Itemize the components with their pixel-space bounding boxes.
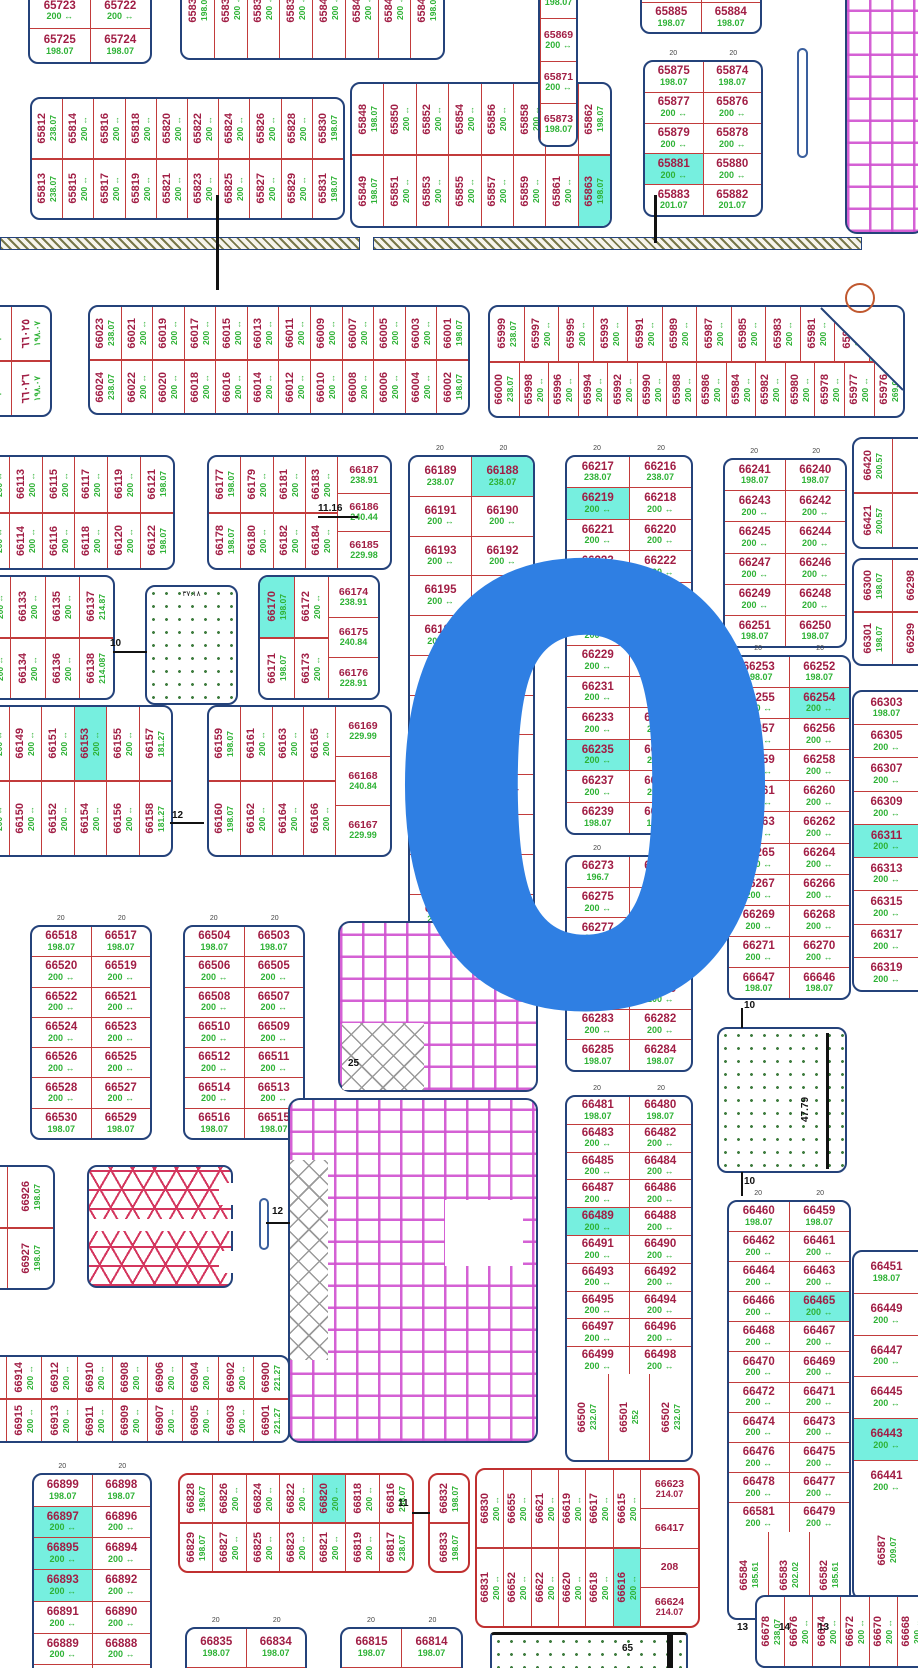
plot-cell[interactable]: 66903200 ↔ [218, 1400, 253, 1441]
plot-cell[interactable]: 208 [641, 1548, 698, 1587]
plot-cell[interactable]: 66480198.07 [630, 1097, 692, 1124]
plot-cell[interactable]: 65843200 ↔ [345, 0, 378, 58]
plot-cell[interactable]: 66172200 ↔ [294, 577, 329, 637]
plot-cell[interactable]: 66897200 ↔ [34, 1507, 93, 1538]
plot-cell[interactable]: 66187238.91 [338, 457, 390, 493]
plot-cell[interactable]: 66020200 ↔ [152, 361, 184, 413]
plot-cell[interactable]: 66248200 ↔ [786, 585, 846, 615]
plot-cell[interactable]: 66493200 ↔ [567, 1264, 630, 1291]
plot-cell[interactable]: 66225200 ↔ [567, 583, 630, 613]
plot-cell[interactable]: 65865198.07 [541, 0, 576, 18]
plot-cell[interactable]: 66152200 ↔ [41, 782, 74, 855]
plot-cell[interactable]: 66013200 ↔ [247, 307, 279, 359]
plot-cell[interactable]: 66499200 ↔ [567, 1347, 630, 1374]
plot-cell[interactable]: 66224200 ↔ [630, 583, 692, 613]
plot-cell[interactable]: 66834198.07 [247, 1629, 306, 1667]
plot-cell[interactable]: 65835200 ↔ [214, 0, 247, 58]
plot-cell[interactable]: 66828198.07 [180, 1475, 212, 1522]
plot-cell[interactable]: 66483200 ↔ [567, 1125, 630, 1152]
plot-cell[interactable]: 65820200 ↔ [156, 99, 187, 158]
plot-cell[interactable]: 66024238.07 [90, 361, 121, 413]
plot-cell[interactable]: 66624214.07 [641, 1587, 698, 1626]
plot-cell[interactable]: 66021200 ↔ [121, 307, 153, 359]
plot-cell[interactable]: 66285198.07 [567, 1040, 630, 1070]
plot-cell[interactable]: 66485200 ↔ [567, 1153, 630, 1180]
plot-cell[interactable]: 66479200 ↔ [790, 1503, 850, 1532]
plot-cell[interactable]: 66271200 ↔ [729, 937, 790, 967]
plot-cell[interactable]: 66928200 ↔ [0, 1167, 7, 1227]
plot-cell[interactable]: 66257200 ↔ [729, 719, 790, 749]
plot-cell[interactable]: 66498200 ↔ [630, 1347, 692, 1374]
plot-cell[interactable]: 66250198.07 [786, 616, 846, 646]
plot-cell[interactable]: 66196200 ↔ [472, 616, 533, 655]
plot-cell[interactable]: 66298 [892, 560, 918, 611]
plot-cell[interactable]: 66227200 ↔ [567, 614, 630, 644]
plot-cell[interactable]: 65847198.07 [410, 0, 443, 58]
plot-cell[interactable]: 65816200 ↔ [93, 99, 124, 158]
plot-cell[interactable]: 66464200 ↔ [729, 1262, 790, 1291]
plot-cell[interactable]: 65998200 ↔ [519, 363, 549, 417]
plot-cell[interactable]: 66902200 ↔ [218, 1357, 253, 1398]
plot-cell[interactable]: 66511200 ↔ [245, 1048, 304, 1077]
plot-cell[interactable]: 65871200 ↔ [541, 61, 576, 103]
plot-cell[interactable]: 66247200 ↔ [725, 554, 786, 584]
plot-cell[interactable]: 66506200 ↔ [185, 957, 245, 986]
plot-cell[interactable]: 66244200 ↔ [786, 522, 846, 552]
plot-cell[interactable]: 66814198.07 [402, 1629, 461, 1667]
plot-cell[interactable]: ٦٦٠٢٥١٩٨.٠٧ [11, 307, 51, 360]
plot-cell[interactable]: 66889200 ↔ [34, 1634, 93, 1665]
plot-cell[interactable]: 66133200 ↔ [10, 577, 44, 637]
plot-cell[interactable]: 65876200 ↔ [704, 93, 762, 123]
plot-cell[interactable]: 65850200 ↔ [383, 84, 415, 154]
plot-cell[interactable]: 66469200 ↔ [790, 1352, 850, 1381]
plot-cell[interactable]: 66441200 ↔ [854, 1461, 918, 1502]
plot-cell[interactable]: 66620200 ↔ [558, 1549, 585, 1626]
plot-cell[interactable]: 65884198.07 [702, 3, 761, 33]
plot-cell[interactable]: 66317200 ↔ [854, 925, 918, 957]
plot-cell[interactable]: 65996200 ↔ [548, 363, 578, 417]
plot-cell[interactable]: 65825200 ↔ [218, 160, 249, 219]
plot-cell[interactable]: 66476200 ↔ [729, 1443, 790, 1472]
plot-cell[interactable]: 66487200 ↔ [567, 1180, 630, 1207]
plot-cell[interactable]: 66502232.07 [649, 1374, 691, 1460]
plot-cell[interactable]: 66449200 ↔ [854, 1294, 918, 1335]
plot-cell[interactable]: 66169229.99 [336, 707, 390, 756]
plot-cell[interactable]: 66910200 ↔ [77, 1357, 112, 1398]
plot-cell[interactable]: 66205200 ↔ [410, 775, 472, 814]
plot-cell[interactable]: 66012200 ↔ [278, 361, 310, 413]
plot-cell[interactable]: 66273196.7 [567, 857, 630, 887]
plot-cell[interactable]: 65819200 ↔ [125, 160, 156, 219]
plot-cell[interactable]: 66185229.98 [338, 531, 390, 568]
plot-cell[interactable]: 66003200 ↔ [405, 307, 437, 359]
plot-cell[interactable]: 66252198.07 [790, 657, 850, 687]
plot-cell[interactable]: 66119200 ↔ [107, 457, 140, 512]
plot-cell[interactable]: 66171198.07 [260, 639, 294, 699]
plot-cell[interactable]: 66220200 ↔ [630, 520, 692, 550]
plot-cell[interactable]: 66913200 ↔ [41, 1400, 76, 1441]
plot-cell[interactable]: 66831200 ↔ [477, 1549, 503, 1626]
plot-cell[interactable]: 66477200 ↔ [790, 1473, 850, 1502]
plot-cell[interactable]: 66147200 ↔ [0, 707, 9, 780]
plot-cell[interactable]: 66527200 ↔ [92, 1078, 151, 1107]
plot-cell[interactable]: 66237200 ↔ [567, 771, 630, 801]
plot-cell[interactable]: 66829198.07 [180, 1524, 212, 1571]
plot-cell[interactable]: 66268200 ↔ [790, 906, 850, 936]
plot-cell[interactable]: 65845200 ↔ [378, 0, 411, 58]
plot-cell[interactable]: 66131200 ↔ [0, 577, 10, 637]
plot-cell[interactable]: 66908200 ↔ [112, 1357, 147, 1398]
plot-cell[interactable]: 66167229.99 [336, 805, 390, 855]
plot-cell[interactable]: 65993200 ↔ [593, 307, 628, 361]
plot-cell[interactable]: 66504198.07 [185, 927, 245, 956]
plot-cell[interactable]: 66177198.07 [209, 457, 240, 512]
plot-cell[interactable]: 66909200 ↔ [112, 1400, 147, 1441]
plot-cell[interactable]: 65999238.07 [490, 307, 524, 361]
plot-cell[interactable]: 66018200 ↔ [184, 361, 216, 413]
plot-cell[interactable]: 65812238.07 [32, 99, 62, 158]
plot-cell[interactable]: 65863198.07 [578, 156, 610, 226]
plot-cell[interactable]: 66216238.07 [630, 457, 692, 487]
plot-cell[interactable]: 66190200 ↔ [472, 497, 533, 536]
plot-cell[interactable]: 66134200 ↔ [10, 639, 44, 699]
plot-cell[interactable]: 66472200 ↔ [729, 1383, 790, 1412]
plot-cell[interactable]: 65824200 ↔ [218, 99, 249, 158]
plot-cell[interactable]: 65815200 ↔ [62, 160, 93, 219]
plot-cell[interactable]: 66151200 ↔ [41, 707, 74, 780]
plot-cell[interactable]: 66174238.91 [329, 577, 378, 617]
plot-cell[interactable]: 66815198.07 [342, 1629, 402, 1667]
plot-cell[interactable]: 66202200 ↔ [472, 735, 533, 774]
plot-cell[interactable]: 66238198.07 [630, 803, 692, 833]
plot-cell[interactable]: 66138214.087 [79, 639, 113, 699]
plot-cell[interactable]: 65991200 ↔ [627, 307, 662, 361]
plot-cell[interactable]: ٦٦٠٢٧٢٠٠ [0, 307, 11, 360]
plot-cell[interactable]: 66906200 ↔ [147, 1357, 182, 1398]
plot-cell[interactable]: 66926198.07 [7, 1167, 53, 1227]
plot-cell[interactable]: 66447200 ↔ [854, 1336, 918, 1377]
plot-cell[interactable]: 66153200 ↔ [74, 707, 107, 780]
plot-cell[interactable]: 66157181.27 [139, 707, 172, 780]
plot-cell[interactable]: 66166200 ↔ [303, 782, 335, 855]
plot-cell[interactable]: 66154200 ↔ [74, 782, 107, 855]
plot-cell[interactable]: 65988200 ↔ [666, 363, 696, 417]
plot-cell[interactable]: 66010200 ↔ [310, 361, 342, 413]
plot-cell[interactable]: 66821200 ↔ [312, 1524, 345, 1571]
plot-cell[interactable]: 65823200 ↔ [187, 160, 218, 219]
plot-cell[interactable]: 66451198.07 [854, 1252, 918, 1293]
plot-cell[interactable]: 65878200 ↔ [704, 124, 762, 154]
plot-cell[interactable]: 66492200 ↔ [630, 1264, 692, 1291]
plot-cell[interactable]: 66209200 ↔ [410, 855, 472, 894]
plot-cell[interactable]: 66163200 ↔ [272, 707, 304, 780]
plot-cell[interactable]: 66204200 ↔ [472, 775, 533, 814]
plot-cell[interactable]: 66825200 ↔ [246, 1524, 279, 1571]
plot-cell[interactable]: 65856200 ↔ [481, 84, 513, 154]
plot-cell[interactable]: 66305200 ↔ [854, 725, 918, 757]
plot-cell[interactable]: 65880200 ↔ [704, 154, 762, 184]
plot-cell[interactable]: 66260200 ↔ [790, 781, 850, 811]
plot-cell[interactable]: 65990200 ↔ [637, 363, 667, 417]
plot-cell[interactable]: 66417 [641, 1508, 698, 1547]
plot-cell[interactable]: 66618200 ↔ [585, 1549, 612, 1626]
plot-cell[interactable]: 66497200 ↔ [567, 1319, 630, 1346]
plot-cell[interactable]: 66615200 ↔ [613, 1470, 640, 1547]
plot-cell[interactable]: 66465200 ↔ [790, 1292, 850, 1321]
plot-cell[interactable]: 66263200 ↔ [729, 812, 790, 842]
plot-cell[interactable]: 66235200 ↔ [567, 740, 630, 770]
plot-cell[interactable]: 66198200 ↔ [472, 656, 533, 695]
plot-cell[interactable]: 65837200 ↔ [247, 0, 280, 58]
plot-cell[interactable]: 65849198.07 [352, 156, 383, 226]
plot-cell[interactable]: 65833198.07 [182, 0, 214, 58]
plot-cell[interactable]: 66475200 ↔ [790, 1443, 850, 1472]
plot-cell[interactable]: 66505200 ↔ [245, 957, 304, 986]
plot-cell[interactable]: 66820200 ↔ [312, 1475, 345, 1522]
plot-cell[interactable]: 66500232.07 [567, 1374, 608, 1460]
plot-cell[interactable]: 66313200 ↔ [854, 858, 918, 890]
plot-cell[interactable]: 66501252 [608, 1374, 650, 1460]
plot-cell[interactable]: 66524200 ↔ [32, 1018, 92, 1047]
plot-cell[interactable]: 66905200 ↔ [182, 1400, 217, 1441]
plot-cell[interactable]: 66420200.57 [854, 439, 892, 492]
plot-cell[interactable]: 65885198.07 [642, 3, 702, 33]
plot-cell[interactable]: 66246200 ↔ [786, 554, 846, 584]
plot-cell[interactable]: 66207200 ↔ [410, 815, 472, 854]
plot-cell[interactable]: 66193200 ↔ [410, 537, 472, 576]
plot-cell[interactable]: 66008200 ↔ [342, 361, 374, 413]
plot-cell[interactable]: 66929200 ↔ [0, 1229, 7, 1289]
plot-cell[interactable]: 66823200 ↔ [279, 1524, 312, 1571]
plot-cell[interactable]: 66175240.84 [329, 617, 378, 658]
plot-cell[interactable]: 66120200 ↔ [107, 514, 140, 569]
plot-cell[interactable]: 66007200 ↔ [342, 307, 374, 359]
plot-cell[interactable]: 66468200 ↔ [729, 1322, 790, 1351]
plot-cell[interactable]: 66255200 ↔ [729, 688, 790, 718]
plot-cell[interactable]: 65828200 ↔ [281, 99, 312, 158]
plot-cell[interactable]: 66195200 ↔ [410, 576, 472, 615]
plot-cell[interactable]: 66254200 ↔ [790, 688, 850, 718]
plot-cell[interactable]: 65989200 ↔ [662, 307, 697, 361]
plot-cell[interactable]: 66278200 ↔ [630, 949, 692, 979]
plot-cell[interactable]: 66265200 ↔ [729, 844, 790, 874]
plot-cell[interactable]: 66520200 ↔ [32, 957, 92, 986]
plot-cell[interactable]: 66300198.07 [854, 560, 892, 611]
plot-cell[interactable]: 66241198.07 [725, 460, 786, 490]
plot-cell[interactable]: 66587209.07 [854, 1502, 918, 1598]
plot-cell[interactable]: 65982200 ↔ [755, 363, 785, 417]
plot-cell[interactable]: 66173200 ↔ [294, 639, 329, 699]
plot-cell[interactable]: 66161200 ↔ [240, 707, 272, 780]
plot-cell[interactable]: 66301198.07 [854, 613, 892, 664]
plot-cell[interactable]: 66262200 ↔ [790, 812, 850, 842]
plot-cell[interactable]: 66462200 ↔ [729, 1232, 790, 1261]
plot-cell[interactable]: 66136200 ↔ [45, 639, 79, 699]
plot-cell[interactable]: 66482200 ↔ [630, 1125, 692, 1152]
plot-cell[interactable]: 66899198.07 [34, 1475, 93, 1506]
plot-cell[interactable]: 66277200 ↔ [567, 918, 630, 948]
plot-cell[interactable]: 66155200 ↔ [106, 707, 139, 780]
plot-cell[interactable]: 66160198.07 [209, 782, 240, 855]
plot-cell[interactable]: ٦٦٠٢٦١٩٨.٠٧ [11, 362, 51, 415]
plot-cell[interactable]: 66461200 ↔ [790, 1232, 850, 1261]
plot-cell[interactable]: 66251198.07 [725, 616, 786, 646]
plot-cell[interactable]: 66529198.07 [92, 1109, 151, 1138]
plot-cell[interactable]: 66309200 ↔ [854, 792, 918, 824]
plot-cell[interactable]: 65986200 ↔ [696, 363, 726, 417]
plot-cell[interactable]: 66201200 ↔ [410, 696, 472, 735]
plot-cell[interactable]: 66470200 ↔ [729, 1352, 790, 1381]
plot-cell[interactable]: 65826200 ↔ [249, 99, 280, 158]
plot-cell[interactable]: 66243200 ↔ [725, 491, 786, 521]
plot-cell[interactable]: 66826200 ↔ [212, 1475, 245, 1522]
plot-cell[interactable]: 65994200 ↔ [578, 363, 608, 417]
plot-cell[interactable]: 66893200 ↔ [34, 1570, 93, 1601]
plot-cell[interactable]: 66279200 ↔ [567, 949, 630, 979]
plot-cell[interactable]: 66261200 ↔ [729, 781, 790, 811]
plot-cell[interactable]: 66206200 ↔ [472, 815, 533, 854]
plot-cell[interactable]: 66900221.27 [253, 1357, 288, 1398]
plot-cell[interactable]: 65813238.07 [32, 160, 62, 219]
plot-cell[interactable]: 66512200 ↔ [185, 1048, 245, 1077]
plot-cell[interactable]: 65841200 ↔ [312, 0, 345, 58]
plot-cell[interactable]: 65853200 ↔ [416, 156, 448, 226]
plot-cell[interactable]: 65873198.07 [541, 103, 576, 145]
plot-cell[interactable]: 66272198.07 [630, 857, 692, 887]
plot-cell[interactable]: 66282200 ↔ [630, 1010, 692, 1040]
plot-cell[interactable]: 65987200 ↔ [696, 307, 731, 361]
plot-cell[interactable]: 66276200 ↔ [630, 918, 692, 948]
plot-cell[interactable]: 66232200 ↔ [630, 708, 692, 738]
plot-cell[interactable]: 66616200 ↔ [613, 1549, 640, 1626]
plot-cell[interactable]: 66184200 ↔ [305, 514, 337, 569]
plot-cell[interactable]: 66491200 ↔ [567, 1236, 630, 1263]
plot-cell[interactable]: 66283200 ↔ [567, 1010, 630, 1040]
plot-cell[interactable]: 66170198.07 [260, 577, 294, 637]
plot-cell[interactable]: 66275200 ↔ [567, 888, 630, 918]
plot-cell[interactable]: 66266200 ↔ [790, 875, 850, 905]
plot-cell[interactable]: 66164200 ↔ [272, 782, 304, 855]
plot-cell[interactable]: 66122198.07 [140, 514, 173, 569]
plot-cell[interactable]: 66467200 ↔ [790, 1322, 850, 1351]
plot-cell[interactable]: 66168240.84 [336, 756, 390, 806]
plot-cell[interactable]: 66460198.07 [729, 1202, 790, 1231]
plot-cell[interactable]: 66150200 ↔ [9, 782, 42, 855]
plot-cell[interactable]: 66230200 ↔ [630, 677, 692, 707]
plot-cell[interactable]: 66443200 ↔ [854, 1419, 918, 1460]
plot-cell[interactable]: 66907200 ↔ [147, 1400, 182, 1441]
plot-cell[interactable]: 66223200 ↔ [567, 551, 630, 581]
plot-cell[interactable]: 66915200 ↔ [6, 1400, 41, 1441]
plot-cell[interactable]: 66240198.07 [786, 460, 846, 490]
plot-cell[interactable]: 66014200 ↔ [247, 361, 279, 413]
plot-cell[interactable]: 66023238.07 [90, 307, 121, 359]
plot-cell[interactable]: 66019200 ↔ [152, 307, 184, 359]
plot-cell[interactable]: 65851200 ↔ [383, 156, 415, 226]
plot-cell[interactable]: 66463200 ↔ [790, 1262, 850, 1291]
plot-cell[interactable]: 66016200 ↔ [215, 361, 247, 413]
plot-cell[interactable]: 66203200 ↔ [410, 735, 472, 774]
plot-cell[interactable]: 66522200 ↔ [32, 988, 92, 1017]
plot-cell[interactable]: 66303198.07 [854, 692, 918, 724]
plot-cell[interactable]: 66521200 ↔ [92, 988, 151, 1017]
plot-cell[interactable]: 65879200 ↔ [645, 124, 704, 154]
plot-cell[interactable]: 66830200 ↔ [477, 1470, 503, 1547]
plot-cell[interactable]: 65854200 ↔ [448, 84, 480, 154]
plot-cell[interactable]: 66912200 ↔ [41, 1357, 76, 1398]
plot-cell[interactable]: 66824200 ↔ [246, 1475, 279, 1522]
plot-cell[interactable]: 66895200 ↔ [34, 1538, 93, 1569]
plot-cell[interactable]: 66523200 ↔ [92, 1018, 151, 1047]
plot-cell[interactable]: 65859200 ↔ [513, 156, 545, 226]
plot-cell[interactable]: 66111200 ↔ [0, 457, 9, 512]
plot-cell[interactable]: 66006200 ↔ [373, 361, 405, 413]
plot-cell[interactable]: 66652200 ↔ [503, 1549, 530, 1626]
plot-cell[interactable]: 66221200 ↔ [567, 520, 630, 550]
plot-cell[interactable]: 66319200 ↔ [854, 958, 918, 990]
plot-cell[interactable]: 65984200 ↔ [726, 363, 756, 417]
plot-cell[interactable]: 66181200 ↔ [273, 457, 305, 512]
plot-cell[interactable]: 66525200 ↔ [92, 1048, 151, 1077]
plot-cell[interactable]: 66672200 ↔ [840, 1597, 868, 1666]
plot-cell[interactable]: 65881200 ↔ [645, 154, 704, 184]
plot-cell[interactable]: 66516198.07 [185, 1109, 245, 1138]
plot-cell[interactable]: 66194200 ↔ [472, 576, 533, 615]
plot-cell[interactable]: 66299 [892, 613, 918, 664]
plot-cell[interactable]: 66670200 ↔ [869, 1597, 897, 1666]
plot-cell[interactable]: 66149200 ↔ [9, 707, 42, 780]
plot-cell[interactable]: 66017200 ↔ [184, 307, 216, 359]
plot-cell[interactable]: 66222200 ↔ [630, 551, 692, 581]
plot-cell[interactable]: 66901221.27 [253, 1400, 288, 1441]
plot-cell[interactable]: 65882201.07 [704, 185, 762, 215]
plot-cell[interactable]: 66165200 ↔ [303, 707, 335, 780]
plot-cell[interactable]: 66817238.07 [379, 1524, 412, 1571]
plot-cell[interactable]: 66474200 ↔ [729, 1413, 790, 1442]
plot-cell[interactable]: 66176228.91 [329, 657, 378, 698]
plot-cell[interactable]: 65874198.07 [704, 62, 762, 92]
plot-cell[interactable]: 65827200 ↔ [249, 160, 280, 219]
plot-cell[interactable]: 65869200 ↔ [541, 18, 576, 60]
plot-cell[interactable]: 65829200 ↔ [281, 160, 312, 219]
plot-cell[interactable]: 66818200 ↔ [345, 1475, 378, 1522]
plot-cell[interactable]: 66208200 ↔ [472, 855, 533, 894]
plot-cell[interactable]: 66242200 ↔ [786, 491, 846, 521]
plot-cell[interactable]: 66927198.07 [7, 1229, 53, 1289]
plot-cell[interactable]: 66622200 ↔ [531, 1549, 558, 1626]
plot-cell[interactable]: 65861200 ↔ [545, 156, 577, 226]
plot-cell[interactable]: 66218200 ↔ [630, 488, 692, 518]
plot-cell[interactable]: 65857200 ↔ [481, 156, 513, 226]
plot-cell[interactable]: 66245200 ↔ [725, 522, 786, 552]
plot-cell[interactable]: 66827200 ↔ [212, 1524, 245, 1571]
plot-cell[interactable]: 66219200 ↔ [567, 488, 630, 518]
plot-cell[interactable]: 65985200 ↔ [731, 307, 766, 361]
plot-cell[interactable]: 65830198.07 [312, 99, 343, 158]
plot-cell[interactable]: 66159198.07 [209, 707, 240, 780]
plot-cell[interactable]: 66471200 ↔ [790, 1383, 850, 1412]
plot-cell[interactable]: 66234200 ↔ [630, 740, 692, 770]
plot-cell[interactable]: 65817200 ↔ [93, 160, 124, 219]
plot-cell[interactable]: 66619200 ↔ [558, 1470, 585, 1547]
plot-cell[interactable]: 66490200 ↔ [630, 1236, 692, 1263]
plot-cell[interactable]: 65725198.07 [30, 29, 91, 62]
plot-cell[interactable]: 66459198.07 [790, 1202, 850, 1231]
plot-cell[interactable]: 66148200 ↔ [0, 782, 9, 855]
plot-cell[interactable]: 66822200 ↔ [279, 1475, 312, 1522]
plot-cell[interactable]: 65852200 ↔ [416, 84, 448, 154]
